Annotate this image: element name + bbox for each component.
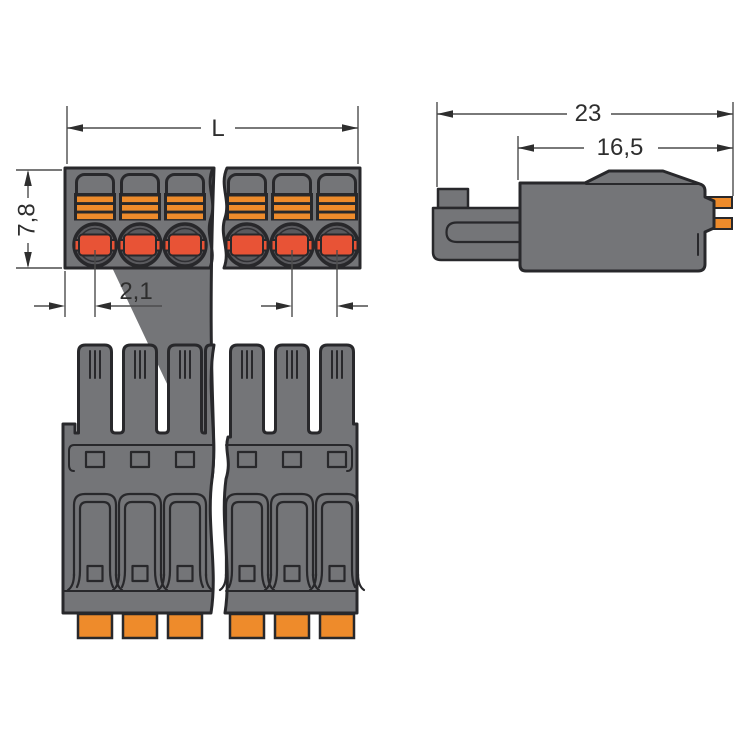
latch-tab: [438, 189, 468, 208]
push-button: [230, 614, 264, 638]
arrowhead-right: [49, 302, 65, 310]
connector-drawing: L 7,8 2,1: [0, 0, 750, 750]
arrowhead-left: [67, 124, 83, 132]
arrowhead-right: [717, 144, 733, 152]
push-button: [78, 614, 112, 638]
dimension-length-L: L: [67, 106, 358, 164]
dimension-label-overall-depth: 23: [575, 100, 602, 127]
push-button: [320, 614, 354, 638]
arrowhead-down: [24, 252, 32, 268]
dimension-label-length: L: [211, 115, 224, 142]
arrowhead-left: [518, 144, 534, 152]
dimension-label-edge-to-pole: 2,1: [119, 278, 152, 305]
dimension-label-housing-depth: 16,5: [597, 134, 644, 161]
push-button: [123, 614, 157, 638]
side-view: 23 16,5: [433, 100, 733, 271]
front-segment-right: [224, 345, 357, 613]
technical-drawing-page: L 7,8 2,1: [0, 0, 750, 750]
arrowhead-left: [95, 302, 111, 310]
housing-side-body: [520, 171, 714, 271]
push-button: [275, 614, 309, 638]
dimension-height-7-8: 7,8: [14, 170, 63, 268]
dimension-label-height: 7,8: [14, 203, 41, 236]
push-button: [168, 614, 202, 638]
arrowhead-right: [717, 110, 733, 118]
arrowhead-right: [342, 124, 358, 132]
front-segment-left: [63, 345, 214, 613]
arrowhead-up: [24, 170, 32, 186]
arrowhead-left: [437, 110, 453, 118]
arrowhead-left: [337, 302, 353, 310]
arrowhead-right: [276, 302, 292, 310]
